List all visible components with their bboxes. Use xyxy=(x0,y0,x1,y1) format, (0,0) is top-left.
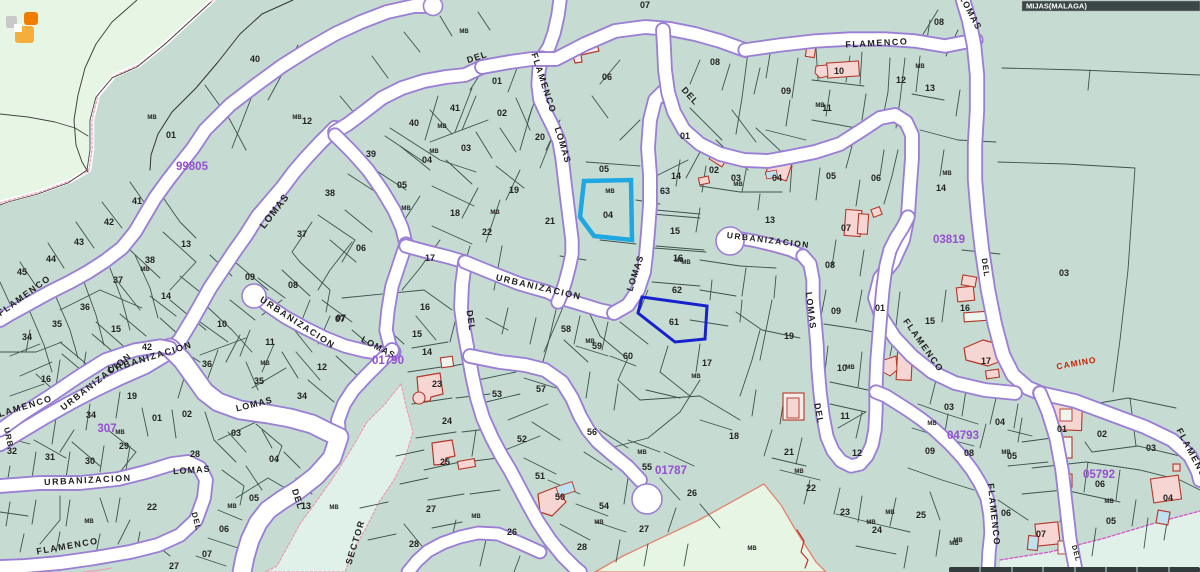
svg-text:06: 06 xyxy=(219,524,229,534)
svg-text:02: 02 xyxy=(1097,429,1107,439)
svg-text:11: 11 xyxy=(840,411,850,421)
svg-text:42: 42 xyxy=(142,342,152,352)
svg-text:MB: MB xyxy=(329,505,339,511)
svg-text:04: 04 xyxy=(1163,493,1173,503)
svg-text:34: 34 xyxy=(297,391,307,401)
svg-text:04: 04 xyxy=(603,210,613,220)
svg-text:MB: MB xyxy=(1001,450,1011,456)
svg-text:16: 16 xyxy=(960,303,970,313)
svg-text:26: 26 xyxy=(687,488,697,498)
svg-text:MB: MB xyxy=(953,538,963,544)
svg-text:27: 27 xyxy=(169,561,179,571)
svg-text:14: 14 xyxy=(422,347,432,357)
svg-text:01790: 01790 xyxy=(372,355,404,367)
svg-text:27: 27 xyxy=(639,524,649,534)
svg-text:09: 09 xyxy=(781,86,791,96)
svg-text:03: 03 xyxy=(944,402,954,412)
svg-text:08: 08 xyxy=(825,260,835,270)
svg-text:MB: MB xyxy=(674,258,684,264)
svg-text:32: 32 xyxy=(7,446,17,456)
svg-text:MB: MB xyxy=(585,339,595,345)
svg-text:06: 06 xyxy=(871,173,881,183)
svg-text:53: 53 xyxy=(492,389,502,399)
svg-text:MB: MB xyxy=(437,124,447,130)
svg-text:16: 16 xyxy=(420,302,430,312)
svg-text:04: 04 xyxy=(422,155,432,165)
svg-text:09: 09 xyxy=(925,446,935,456)
svg-text:99805: 99805 xyxy=(176,161,209,173)
svg-text:307: 307 xyxy=(97,423,116,435)
svg-text:56: 56 xyxy=(587,427,597,437)
svg-text:05: 05 xyxy=(249,493,259,503)
svg-text:MIJAS(MALAGA): MIJAS(MALAGA) xyxy=(1026,2,1087,11)
svg-text:23: 23 xyxy=(432,379,442,389)
svg-text:25: 25 xyxy=(916,510,926,520)
svg-text:17: 17 xyxy=(981,356,991,366)
svg-text:09: 09 xyxy=(831,306,841,316)
svg-text:06: 06 xyxy=(1001,508,1011,518)
svg-text:MB: MB xyxy=(227,504,237,510)
svg-text:50: 50 xyxy=(555,492,565,502)
svg-text:01: 01 xyxy=(875,303,885,313)
svg-text:MB: MB xyxy=(115,430,125,436)
svg-text:05: 05 xyxy=(1106,516,1116,526)
svg-text:60: 60 xyxy=(623,351,633,361)
svg-text:28: 28 xyxy=(577,542,587,552)
svg-text:15: 15 xyxy=(412,329,422,339)
svg-text:10: 10 xyxy=(217,319,227,329)
svg-text:52: 52 xyxy=(517,434,527,444)
svg-text:61: 61 xyxy=(669,317,679,327)
svg-text:MB: MB xyxy=(885,510,895,516)
svg-text:10: 10 xyxy=(834,66,844,76)
svg-text:04: 04 xyxy=(269,454,279,464)
svg-text:04793: 04793 xyxy=(947,430,979,442)
svg-text:36: 36 xyxy=(80,302,90,312)
svg-text:12: 12 xyxy=(852,448,862,458)
svg-text:MB: MB xyxy=(147,115,157,121)
svg-text:03: 03 xyxy=(1059,268,1069,278)
svg-text:19: 19 xyxy=(509,185,519,195)
svg-text:28: 28 xyxy=(409,539,419,549)
svg-text:MB: MB xyxy=(915,64,925,70)
svg-text:44: 44 xyxy=(46,254,56,264)
svg-text:28: 28 xyxy=(190,449,200,459)
svg-text:MB: MB xyxy=(459,29,469,35)
svg-text:06: 06 xyxy=(602,72,612,82)
svg-text:MB: MB xyxy=(942,171,952,177)
svg-text:37: 37 xyxy=(113,275,123,285)
svg-text:34: 34 xyxy=(86,410,96,420)
svg-text:23: 23 xyxy=(840,507,850,517)
svg-text:25: 25 xyxy=(440,457,450,467)
svg-text:15: 15 xyxy=(111,324,121,334)
svg-text:12: 12 xyxy=(302,116,312,126)
svg-text:08: 08 xyxy=(710,57,720,67)
svg-text:45: 45 xyxy=(17,267,27,277)
svg-text:13: 13 xyxy=(925,83,935,93)
svg-text:07: 07 xyxy=(202,549,212,559)
svg-text:24: 24 xyxy=(442,416,452,426)
svg-text:12: 12 xyxy=(896,75,906,85)
svg-text:24: 24 xyxy=(872,525,882,535)
svg-text:MB: MB xyxy=(733,182,743,188)
svg-text:MB: MB xyxy=(471,514,481,520)
svg-text:58: 58 xyxy=(561,324,571,334)
svg-text:41: 41 xyxy=(132,196,142,206)
svg-text:03: 03 xyxy=(1146,443,1156,453)
svg-text:39: 39 xyxy=(366,149,376,159)
svg-text:02: 02 xyxy=(182,409,192,419)
svg-text:02: 02 xyxy=(497,108,507,118)
svg-text:MB: MB xyxy=(747,546,757,552)
svg-text:18: 18 xyxy=(729,431,739,441)
svg-text:38: 38 xyxy=(145,255,155,265)
svg-text:03: 03 xyxy=(461,143,471,153)
svg-text:03: 03 xyxy=(231,428,241,438)
svg-text:06: 06 xyxy=(1095,479,1105,489)
svg-text:01: 01 xyxy=(1057,424,1067,434)
svg-text:06: 06 xyxy=(356,243,366,253)
svg-text:MB: MB xyxy=(866,520,876,526)
svg-text:29: 29 xyxy=(119,441,129,451)
svg-text:MB: MB xyxy=(691,374,701,380)
svg-text:35: 35 xyxy=(52,319,62,329)
svg-text:MB: MB xyxy=(637,450,647,456)
svg-text:17: 17 xyxy=(702,358,712,368)
svg-text:MB: MB xyxy=(815,103,825,109)
svg-text:27: 27 xyxy=(426,504,436,514)
svg-text:35: 35 xyxy=(254,376,264,386)
svg-text:51: 51 xyxy=(535,471,545,481)
svg-text:13: 13 xyxy=(765,215,775,225)
svg-text:MB: MB xyxy=(794,469,804,475)
svg-text:14: 14 xyxy=(161,291,171,301)
svg-text:63: 63 xyxy=(660,186,670,196)
svg-text:22: 22 xyxy=(147,502,157,512)
svg-text:MB: MB xyxy=(429,149,439,155)
svg-text:14: 14 xyxy=(936,183,946,193)
svg-text:40: 40 xyxy=(409,118,419,128)
svg-text:37: 37 xyxy=(297,229,307,239)
svg-text:15: 15 xyxy=(670,226,680,236)
svg-text:21: 21 xyxy=(784,447,794,457)
svg-text:MB: MB xyxy=(594,520,604,526)
svg-text:42: 42 xyxy=(104,217,114,227)
svg-text:43: 43 xyxy=(74,237,84,247)
svg-text:MB: MB xyxy=(292,115,302,121)
svg-text:20: 20 xyxy=(535,132,545,142)
svg-text:MB: MB xyxy=(605,189,615,195)
svg-text:01: 01 xyxy=(680,131,690,141)
svg-text:MB: MB xyxy=(490,210,500,216)
svg-text:04: 04 xyxy=(995,417,1005,427)
svg-text:11: 11 xyxy=(265,337,275,347)
svg-text:03819: 03819 xyxy=(933,234,965,246)
svg-text:62: 62 xyxy=(672,285,682,295)
svg-text:26: 26 xyxy=(507,527,517,537)
svg-text:54: 54 xyxy=(599,501,609,511)
svg-text:13: 13 xyxy=(181,239,191,249)
svg-text:14: 14 xyxy=(671,171,681,181)
svg-text:MB: MB xyxy=(927,421,937,427)
svg-text:MB: MB xyxy=(140,267,150,273)
svg-text:01: 01 xyxy=(152,413,162,423)
svg-text:MB: MB xyxy=(845,365,855,371)
svg-text:01: 01 xyxy=(492,76,502,86)
svg-text:22: 22 xyxy=(482,227,492,237)
svg-text:16: 16 xyxy=(41,374,51,384)
svg-text:01: 01 xyxy=(166,130,176,140)
svg-text:05: 05 xyxy=(397,180,407,190)
svg-text:07: 07 xyxy=(841,223,851,233)
svg-text:05: 05 xyxy=(826,171,836,181)
svg-text:08: 08 xyxy=(288,280,298,290)
svg-text:09: 09 xyxy=(245,272,255,282)
svg-text:04: 04 xyxy=(772,173,782,183)
svg-text:36: 36 xyxy=(202,359,212,369)
svg-text:18: 18 xyxy=(450,208,460,218)
svg-text:19: 19 xyxy=(127,391,137,401)
svg-text:07: 07 xyxy=(1036,529,1046,539)
svg-text:19: 19 xyxy=(784,331,794,341)
svg-text:15: 15 xyxy=(925,316,935,326)
svg-text:13: 13 xyxy=(301,501,311,511)
svg-text:05: 05 xyxy=(599,164,609,174)
svg-text:08: 08 xyxy=(934,17,944,27)
svg-text:38: 38 xyxy=(325,188,335,198)
svg-text:MB: MB xyxy=(1104,499,1114,505)
svg-text:55: 55 xyxy=(642,462,652,472)
svg-text:07: 07 xyxy=(335,314,345,324)
svg-text:01787: 01787 xyxy=(655,465,687,477)
svg-text:57: 57 xyxy=(536,384,546,394)
svg-text:41: 41 xyxy=(450,103,460,113)
svg-text:40: 40 xyxy=(250,54,260,64)
svg-text:12: 12 xyxy=(317,362,327,372)
svg-text:30: 30 xyxy=(85,456,95,466)
svg-text:31: 31 xyxy=(45,452,55,462)
svg-text:08: 08 xyxy=(964,448,974,458)
svg-text:MB: MB xyxy=(84,519,94,525)
svg-text:07: 07 xyxy=(640,0,650,10)
svg-text:MB: MB xyxy=(401,206,411,212)
svg-text:17: 17 xyxy=(425,253,435,263)
svg-text:34: 34 xyxy=(22,332,32,342)
svg-text:21: 21 xyxy=(545,216,555,226)
svg-text:02: 02 xyxy=(709,165,719,175)
svg-text:22: 22 xyxy=(806,483,816,493)
svg-text:MB: MB xyxy=(260,361,270,367)
